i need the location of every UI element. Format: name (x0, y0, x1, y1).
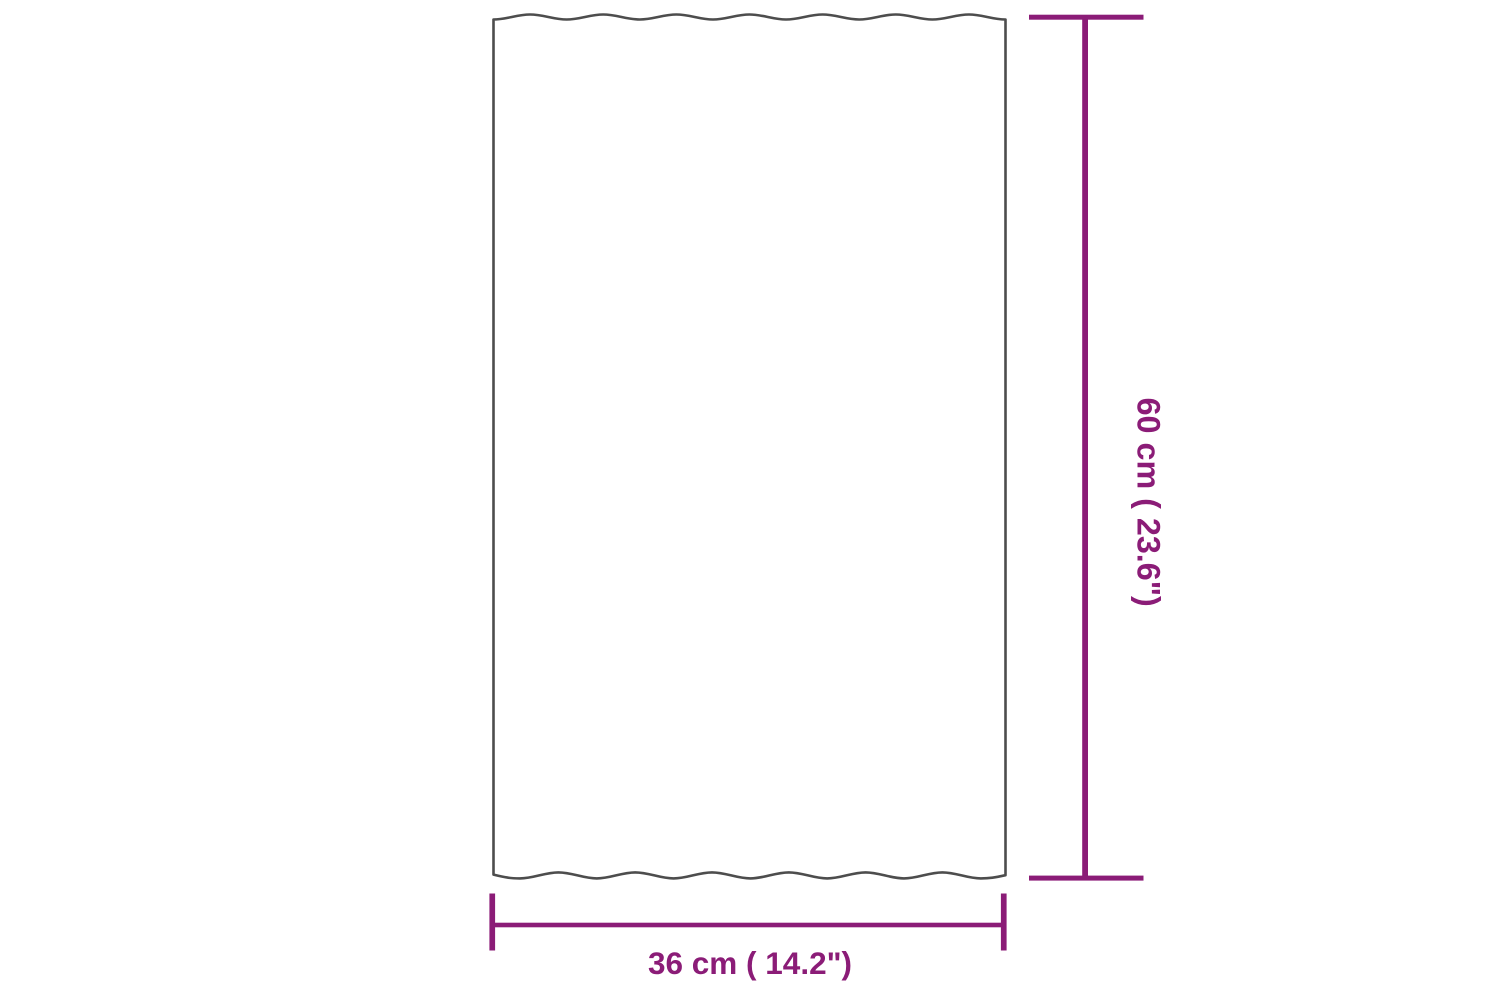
svg-text:36 cm ( 14.2"): 36 cm ( 14.2") (648, 945, 852, 981)
svg-text:60 cm ( 23.6"): 60 cm ( 23.6") (1131, 398, 1167, 607)
